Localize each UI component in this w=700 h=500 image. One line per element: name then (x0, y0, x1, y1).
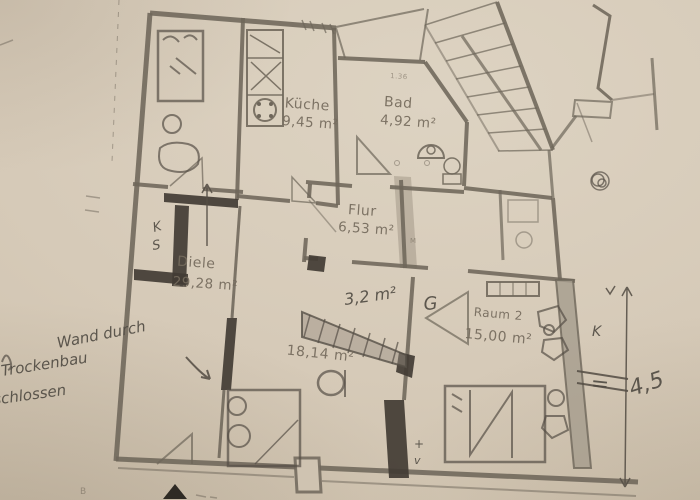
wall-segment (118, 468, 294, 477)
toilet-icon (444, 158, 460, 174)
room-label-kueche: Küche (284, 95, 330, 114)
wall-segment (612, 94, 654, 100)
wall-segment (116, 459, 638, 482)
handwritten-equals: = (589, 371, 610, 398)
toilet-sketch (318, 370, 345, 397)
handwritten-arrow (186, 357, 210, 379)
doors (157, 137, 468, 464)
wall-segment (425, 62, 467, 122)
sink-icon (251, 62, 281, 90)
printed-mark-b: B (80, 487, 87, 497)
handwritten-dimension: 4,5 (626, 367, 667, 402)
edge-ticks (0, 40, 100, 212)
wall-segment (464, 188, 552, 198)
fixture-sketch (516, 232, 532, 248)
room-label-flur: Flur (347, 202, 377, 220)
stair-stringer (425, 25, 499, 151)
stair-diagonal (577, 103, 592, 142)
bed-zimmer (228, 390, 300, 466)
room-area-raum2: 15,00 m² (464, 326, 533, 348)
handwritten-k-closet: K (151, 219, 165, 236)
wall-segment (549, 150, 553, 198)
handwritten-k-right: K (592, 324, 603, 340)
handwritten-g: G (423, 293, 438, 315)
room-area-bad: 4,92 m² (380, 112, 437, 132)
stove-icon (254, 99, 276, 121)
pencil-check-mark: v (414, 454, 421, 467)
room-label-raum2: Raum 2 (473, 305, 523, 323)
room-area-diele: 29,28 m² (172, 274, 238, 295)
wall-segment (232, 206, 240, 318)
wall-segment (316, 203, 338, 206)
wall-segment (336, 9, 424, 27)
washbasin-icon (418, 145, 444, 158)
bed-raum2 (445, 386, 545, 462)
kitchen-counter (247, 30, 283, 126)
wall-segment (237, 196, 290, 201)
dark-wall (221, 318, 237, 390)
wall-segment (336, 28, 345, 58)
dark-door-jamb (307, 255, 326, 272)
wall-segment (404, 277, 413, 400)
wall-segment (322, 481, 636, 496)
wall-segment (464, 122, 467, 186)
pencil-plus-mark: + (414, 437, 424, 451)
bed-top-left (158, 31, 203, 101)
radiator (487, 282, 539, 296)
thick-wall (556, 280, 591, 468)
wall-segment (237, 18, 243, 200)
wall-segment (553, 198, 560, 280)
handwritten-area: 3,2 m² (343, 283, 398, 309)
staircase (425, 2, 612, 151)
room-area-kueche: 9,45 m² (282, 113, 339, 133)
wall-segment (338, 58, 425, 62)
furniture (158, 20, 568, 466)
wall-segment (420, 9, 428, 60)
wall-segment (116, 13, 150, 461)
stair-corner-wall (593, 5, 612, 100)
dashed-line (112, 0, 119, 162)
entry-arrow (202, 184, 212, 246)
pencil-annotations (0, 0, 632, 499)
scribble-circle (591, 172, 609, 190)
floor-plan-photo: Küche 9,45 m² Bad 4,92 m² Flur 6,53 m² D… (0, 0, 700, 500)
stair-stringer (462, 36, 541, 150)
room-area-flur: 6,53 m² (338, 219, 395, 239)
north-triangle (163, 484, 187, 499)
printed-dimension: 1.36 (390, 72, 408, 81)
stair-landing-edge (552, 116, 576, 148)
chair-sketch (163, 115, 181, 133)
fixture-sketch (508, 200, 538, 222)
room-label-bad: Bad (383, 94, 413, 112)
wall-segment (500, 190, 503, 260)
wall-segment (219, 390, 224, 458)
door-swing (357, 137, 390, 174)
handwritten-note-line3: schlossen (0, 381, 67, 409)
handwritten-note-line1: Wand durch (55, 317, 147, 352)
room-label-diele: Diele (177, 254, 216, 273)
pencil-tick (606, 286, 615, 294)
handwritten-note-line2: Trockenbau (0, 349, 89, 380)
armchair-sketch (159, 143, 199, 172)
handwritten-s-closet: S (151, 238, 162, 254)
wall-segment (306, 182, 352, 186)
bottom-marks (196, 495, 217, 498)
printed-mark-m: M (410, 237, 417, 245)
dark-wall-column (384, 400, 409, 478)
